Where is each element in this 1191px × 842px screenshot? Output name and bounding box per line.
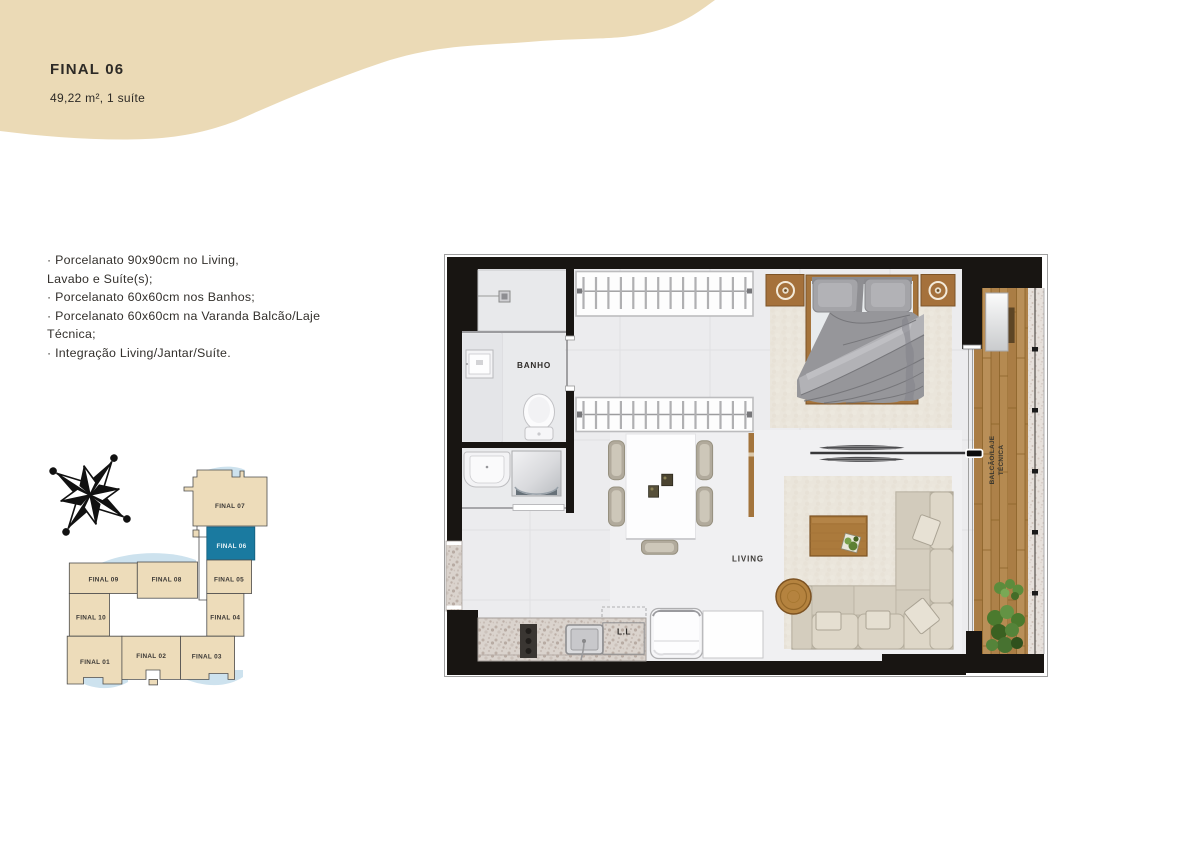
svg-text:FINAL 01: FINAL 01 (80, 659, 110, 666)
svg-text:TÉCNICA: TÉCNICA (996, 445, 1005, 476)
svg-text:LIVING: LIVING (732, 555, 764, 564)
svg-text:FINAL 05: FINAL 05 (214, 577, 244, 584)
svg-text:BALCÃO/LAJE: BALCÃO/LAJE (987, 435, 996, 484)
svg-text:FINAL 08: FINAL 08 (152, 577, 182, 584)
svg-text:FINAL 09: FINAL 09 (89, 577, 119, 584)
svg-text:FINAL 07: FINAL 07 (215, 503, 245, 510)
svg-text:FINAL 06: FINAL 06 (217, 543, 247, 550)
svg-text:FINAL 04: FINAL 04 (210, 615, 240, 622)
svg-text:FINAL 02: FINAL 02 (136, 653, 166, 660)
svg-text:L.L: L.L (617, 627, 631, 637)
svg-text:BANHO: BANHO (517, 361, 551, 370)
svg-text:FINAL 10: FINAL 10 (76, 615, 106, 622)
svg-text:FINAL 03: FINAL 03 (192, 654, 222, 661)
